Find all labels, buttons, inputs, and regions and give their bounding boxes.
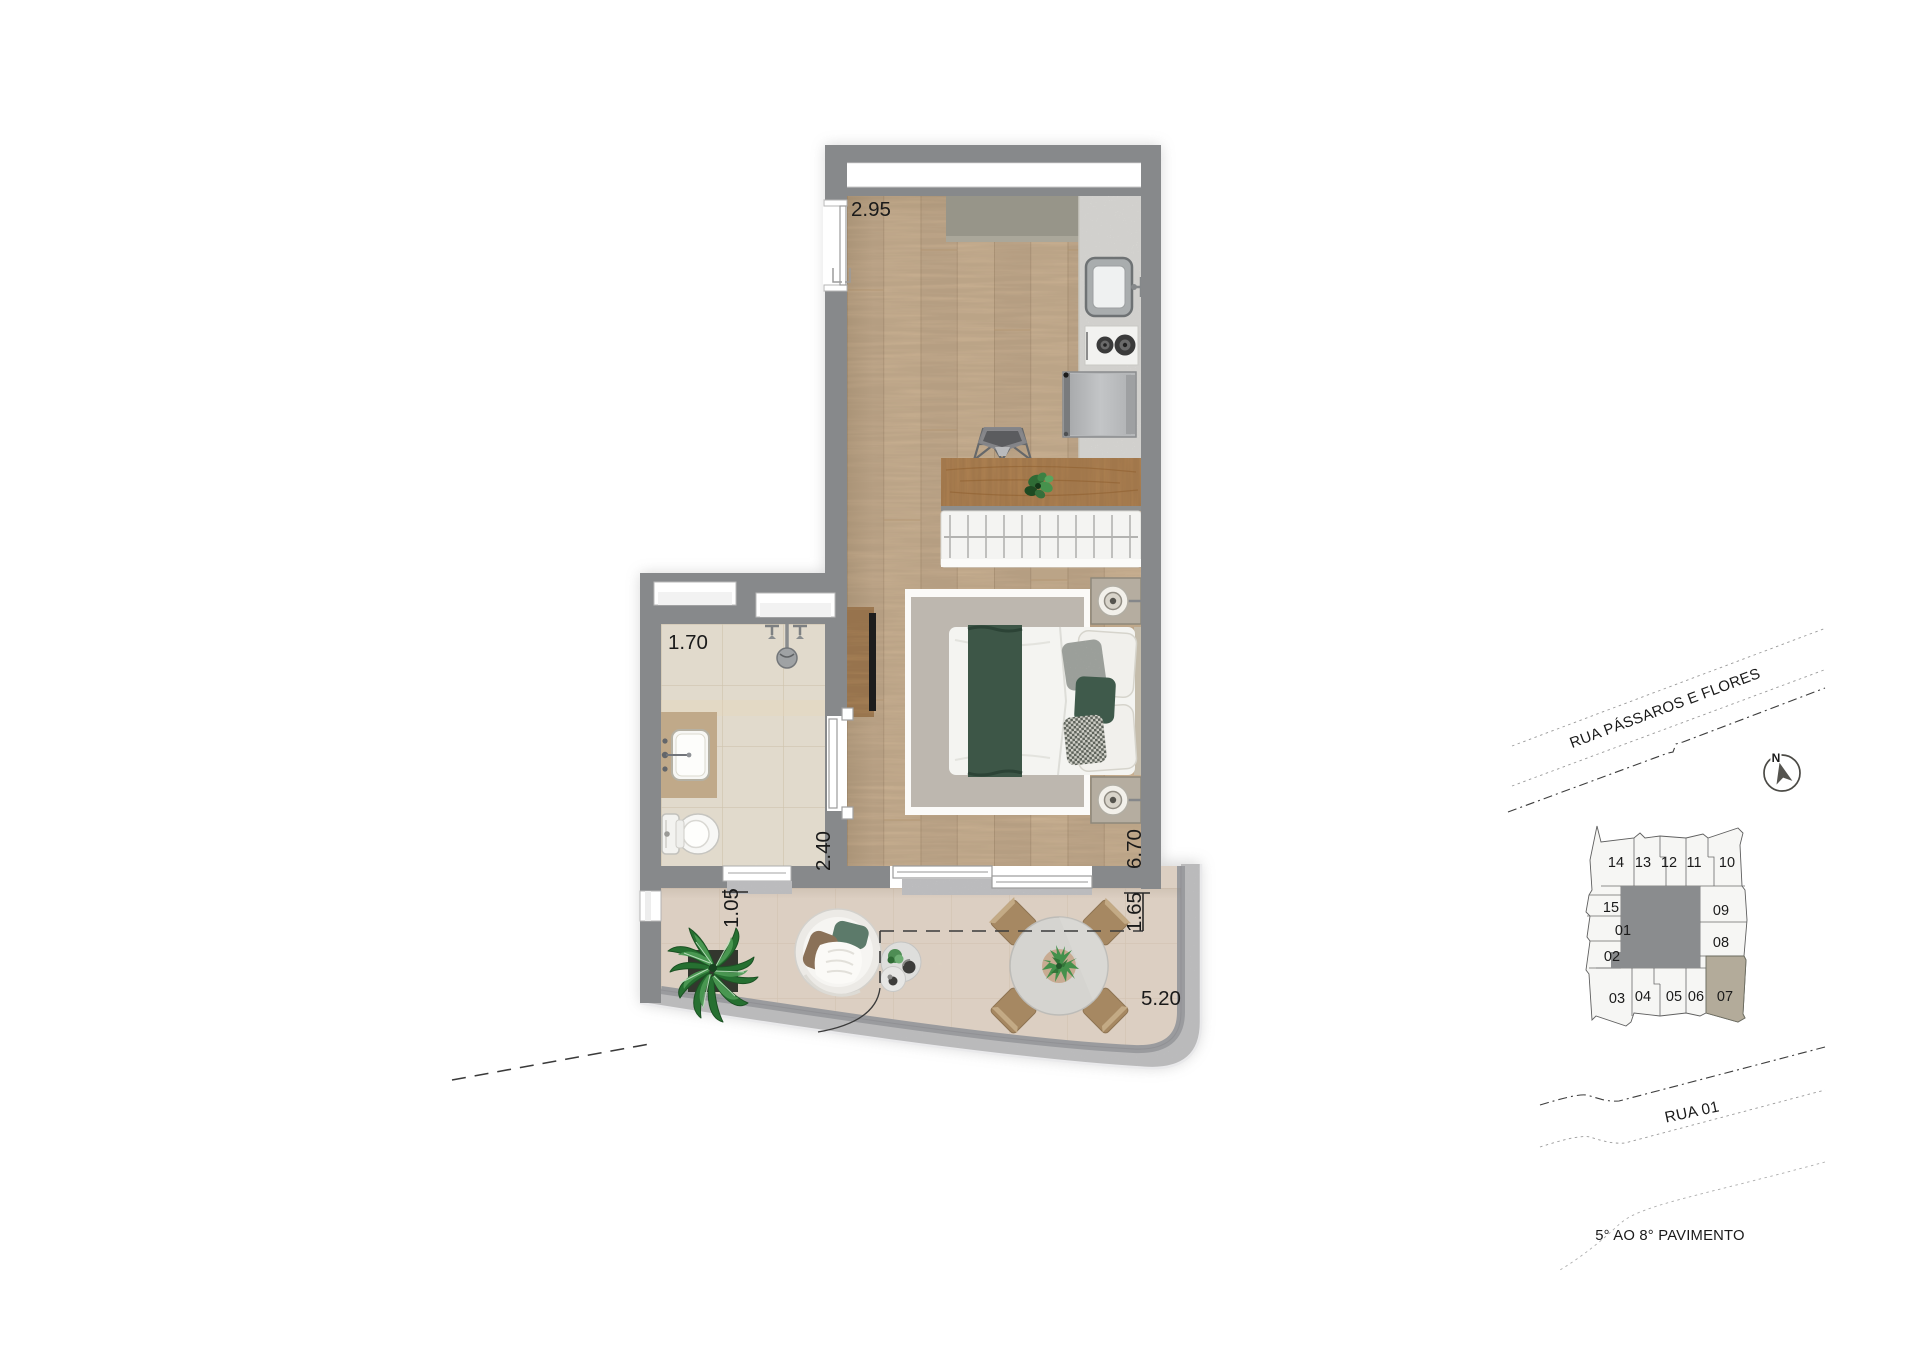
svg-text:5° AO 8° PAVIMENTO: 5° AO 8° PAVIMENTO <box>1595 1228 1744 1244</box>
svg-text:06: 06 <box>1688 989 1704 1005</box>
svg-text:04: 04 <box>1635 989 1651 1005</box>
svg-text:09: 09 <box>1713 903 1729 919</box>
svg-text:14: 14 <box>1608 855 1624 871</box>
svg-text:2.95: 2.95 <box>851 198 891 221</box>
svg-text:11: 11 <box>1686 855 1701 871</box>
svg-text:N: N <box>1772 751 1781 765</box>
svg-text:10: 10 <box>1719 855 1735 871</box>
svg-text:RUA PÁSSAROS E FLORES: RUA PÁSSAROS E FLORES <box>1567 665 1762 752</box>
svg-text:08: 08 <box>1713 935 1729 951</box>
svg-text:RUA 01: RUA 01 <box>1663 1098 1721 1126</box>
svg-text:05: 05 <box>1666 989 1682 1005</box>
svg-text:13: 13 <box>1635 855 1651 871</box>
svg-text:03: 03 <box>1609 991 1625 1007</box>
svg-text:07: 07 <box>1717 989 1733 1005</box>
svg-text:02: 02 <box>1604 949 1620 965</box>
svg-text:1.65: 1.65 <box>1123 892 1146 932</box>
svg-text:12: 12 <box>1661 855 1677 871</box>
svg-text:01: 01 <box>1615 923 1631 939</box>
svg-text:6.70: 6.70 <box>1123 829 1146 869</box>
svg-text:5.20: 5.20 <box>1141 987 1181 1010</box>
svg-text:1.70: 1.70 <box>668 631 708 654</box>
svg-text:1.05: 1.05 <box>720 888 743 928</box>
svg-text:15: 15 <box>1603 900 1619 916</box>
svg-text:2.40: 2.40 <box>812 831 835 871</box>
